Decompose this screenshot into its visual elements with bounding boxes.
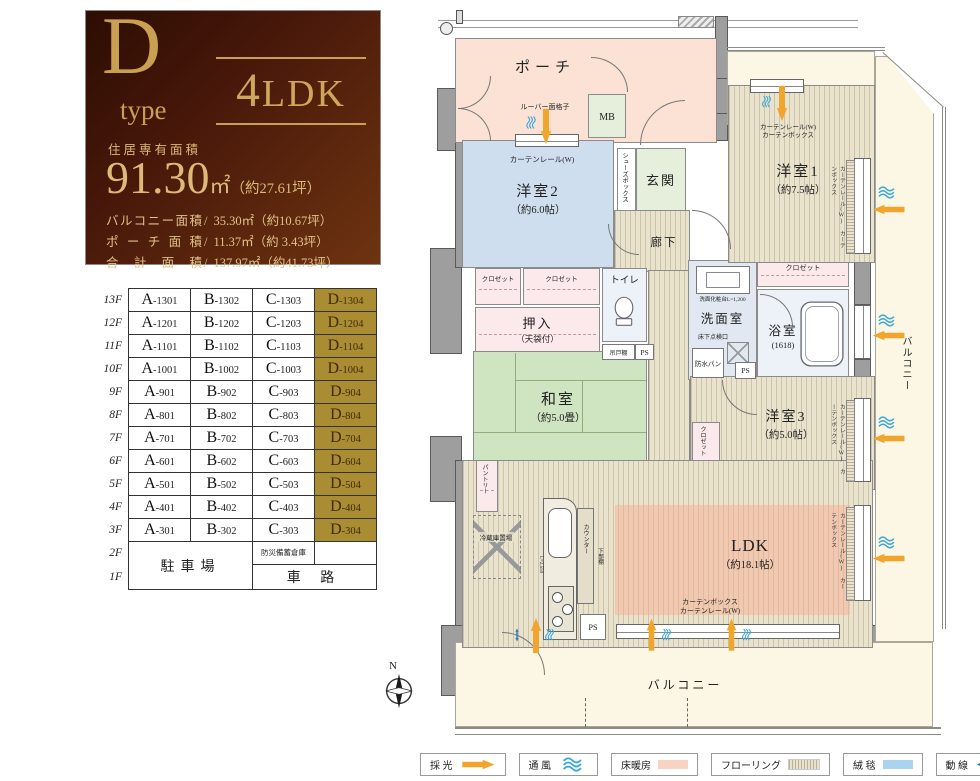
unit-cell: B-702 (191, 427, 253, 450)
fridge-label: 冷蔵庫置場 (478, 532, 514, 542)
light-arrow-icon (872, 204, 906, 215)
wind-icon (874, 314, 900, 327)
closet-label: クロゼット (757, 263, 849, 273)
unit-cell: A-1201 (129, 312, 191, 335)
layout-label: 4LDK (216, 63, 366, 119)
legend-floor-heating: 床暖房 (611, 753, 698, 776)
floor-label: 3F (85, 519, 129, 542)
curtain-label-vertical: カーテンレール(W) カーテンボックス (828, 513, 845, 593)
vanity-label: 洗面化粧台L=1,200 (688, 295, 757, 303)
unit-cell: C-903 (253, 381, 315, 404)
lower-shelf-label: 下部棚 (596, 548, 604, 565)
unit-cell: B-1102 (191, 335, 253, 358)
flooring-swatch (788, 759, 820, 770)
wind-icon (874, 186, 900, 199)
floor-label: 12F (85, 312, 129, 335)
unit-cell: B-802 (191, 404, 253, 427)
unit-cell: C-1303 (253, 289, 315, 312)
type-word: type (120, 97, 167, 124)
wind-icon (874, 416, 900, 429)
unit-cell: C-703 (253, 427, 315, 450)
floor-row: 13FA-1301B-1302C-1303D-1304 (85, 289, 377, 312)
unit-cell: A-601 (129, 450, 191, 473)
curtain-label: カーテンレール(W) (492, 154, 592, 165)
hatch-block (678, 16, 714, 28)
area-tsubo: （約27.61坪） (231, 181, 322, 197)
curtain-box (846, 507, 855, 601)
unit-cell: B-902 (191, 381, 253, 404)
washitsu-label: 和室 （約5.0畳） (498, 388, 618, 425)
floor-label: 2F (85, 542, 129, 565)
wind-icon (732, 629, 762, 642)
floor-label: 13F (85, 289, 129, 312)
unit-cell: A-901 (129, 381, 191, 404)
unit-cell: B-1202 (191, 312, 253, 335)
closet-label: クロゼット (475, 273, 521, 283)
detail-row: ポーチ面積/11.37㎡（約 3.43坪） (106, 232, 368, 253)
corridor-band (438, 20, 858, 28)
unit-cell: A-1001 (129, 358, 191, 381)
corridor-lower (648, 270, 690, 484)
floor-row: 7FA-701B-702C-703D-704 (85, 427, 377, 450)
unit-cell: D-704 (315, 427, 377, 450)
unit-cell: C-503 (253, 473, 315, 496)
window (854, 505, 871, 601)
legend-flooring: フローリング (711, 753, 830, 776)
oshiire-label: 押入 （天袋付） (475, 313, 600, 345)
unit-cell: D-1004 (315, 358, 377, 381)
counter-label: カウンター (581, 524, 590, 554)
corridor-label: 廊下 (640, 234, 688, 250)
area-details: バルコニー面積/35.30㎡（約10.67坪） ポーチ面積/11.37㎡（約 3… (106, 211, 368, 274)
exclusive-area: 91.30㎡（約27.61坪） (106, 151, 370, 204)
floor-row: 11FA-1101B-1102C-1103D-1104 (85, 335, 377, 358)
unit-cell: D-804 (315, 404, 377, 427)
unit-cell: B-402 (191, 496, 253, 519)
balcony-divider (687, 698, 688, 727)
empty-cell (315, 542, 377, 565)
floor-row: 3FA-301B-302C-303D-304 (85, 519, 377, 542)
legend-carpet: 絨 毯 (843, 753, 923, 776)
waterproof-pan: 防水パン (692, 348, 724, 378)
unit-cell: B-602 (191, 450, 253, 473)
pantry-label: パントリー (480, 464, 489, 494)
pipe-space: PS (735, 362, 756, 379)
unit-cell: D-904 (315, 381, 377, 404)
floor-label: 1F (85, 565, 129, 590)
kitchen-sink (548, 508, 572, 558)
floor-row: 8FA-801B-802C-803D-804 (85, 404, 377, 427)
unit-cell: A-1301 (129, 289, 191, 312)
burner (552, 616, 563, 627)
area-value: 91.30 (106, 152, 210, 203)
floor-label: 10F (85, 358, 129, 381)
unit-cell: C-1203 (253, 312, 315, 335)
unit-cell: D-504 (315, 473, 377, 496)
unit-cell: A-701 (129, 427, 191, 450)
parking-cell: 駐車場 (129, 542, 253, 590)
ldk-label: LDK （約18.1帖） (670, 536, 830, 572)
floor-row: 4FA-401B-402C-403D-404 (85, 496, 377, 519)
unit-cell: B-502 (191, 473, 253, 496)
detail-row: 合計面積/137.97㎡（約41.73坪） (106, 253, 368, 274)
fridge-space (473, 515, 521, 579)
porch-label: ポーチ (490, 56, 600, 77)
pipe-icon (456, 10, 463, 24)
page: D type 4LDK 住居専有面積 91.30㎡（約27.61坪） バルコニー… (0, 0, 980, 781)
balcony-railing (942, 107, 946, 629)
balcony-railing (727, 47, 885, 51)
floor-label: 9F (85, 381, 129, 404)
inspection-hatch (727, 342, 749, 364)
floor-heating-swatch (658, 760, 688, 769)
floor-plan: バルコニー バルコニー ポーチ MB シューズボックス 玄関 洋室2 （約6.0… (430, 8, 980, 760)
curtain-label: カーテンボックス カーテンレール(W) (640, 598, 780, 616)
unit-cell: D-604 (315, 450, 377, 473)
type-letter: D (102, 5, 161, 87)
unit-cell: A-401 (129, 496, 191, 519)
closet-label: クロゼット (698, 426, 707, 456)
window (854, 158, 871, 254)
floor-label: 5F (85, 473, 129, 496)
unit-cell: D-1304 (315, 289, 377, 312)
light-arrow-icon (540, 106, 552, 146)
yoshitsu2-label: 洋室2 （約6.0帖） (482, 180, 594, 217)
light-arrow-icon (872, 330, 906, 341)
curtain-label-vertical: カーテンレール(W) カーテンボックス (828, 166, 845, 250)
counter-bar (577, 508, 594, 604)
compass-north-label: N (389, 660, 397, 672)
senmen-label: 洗面室 (688, 308, 757, 327)
unit-cell: C-303 (253, 519, 315, 542)
floor-label: 8F (85, 404, 129, 427)
balcony-label-right: バルコニー (898, 336, 913, 391)
floor-row: 6FA-601B-602C-603D-604 (85, 450, 377, 473)
compass-icon (380, 672, 418, 710)
unit-cell: B-302 (191, 519, 253, 542)
floor-label: 6F (85, 450, 129, 473)
wind-icon (874, 536, 900, 549)
legend-wind: 通 風 (519, 753, 599, 776)
unit-cell: B-1002 (191, 358, 253, 381)
unit-cell: A-501 (129, 473, 191, 496)
toilet-icon (613, 290, 635, 332)
carpet-swatch (883, 760, 913, 769)
unit-cell: D-1204 (315, 312, 377, 335)
tenken-label: 床下点検口 (690, 332, 736, 341)
floor-row: 10FA-1001B-1002C-1003D-1004 (85, 358, 377, 381)
type-info-panel: D type 4LDK 住居専有面積 91.30㎡（約27.61坪） バルコニー… (85, 10, 381, 265)
unit-cell: D-404 (315, 496, 377, 519)
vanity-bowl (706, 272, 740, 288)
unit-cell: A-801 (129, 404, 191, 427)
unit-cell: C-803 (253, 404, 315, 427)
genkan-label: 玄関 (636, 170, 686, 189)
pipe-space: PS (635, 344, 654, 360)
unit-cell: D-304 (315, 519, 377, 542)
floor-row: 9FA-901B-902C-903D-904 (85, 381, 377, 404)
light-arrow-icon (776, 84, 788, 122)
curtain-label-vertical: カーテンレール(W) カーテンボックス (828, 404, 845, 480)
unit-cell: A-301 (129, 519, 191, 542)
tatami-line (474, 432, 646, 433)
balcony-railing (455, 727, 941, 735)
curtain-label: カーテンレール(W) カーテンボックス (736, 124, 840, 141)
kitchen-stove (548, 586, 574, 632)
pipe-space: PS (580, 614, 606, 640)
area-unit: ㎡ (210, 174, 231, 198)
balcony-divider (585, 698, 586, 727)
floor-row: 2F 駐車場 防災備蓄倉庫 (85, 542, 377, 565)
unit-cell: B-1302 (191, 289, 253, 312)
flow-arrow-icon (975, 759, 980, 770)
detail-row: バルコニー面積/35.30㎡（約10.67坪） (106, 211, 368, 232)
hydrant-icon (440, 22, 453, 35)
shoe-box-label: シューズボックス (620, 152, 629, 202)
unit-cell: C-403 (253, 496, 315, 519)
floor-label: 4F (85, 496, 129, 519)
unit-cell: C-1003 (253, 358, 315, 381)
legend-flow-line: 動 線 (936, 753, 980, 776)
counter-length-label: L=2,550 (538, 556, 543, 573)
vanity (696, 266, 750, 294)
unit-cell: C-1103 (253, 335, 315, 358)
driveway-cell: 車 路 (253, 565, 377, 590)
unit-cell: D-1104 (315, 335, 377, 358)
wind-icon (558, 757, 588, 772)
light-arrow-icon (460, 759, 496, 770)
unit-cell: C-603 (253, 450, 315, 473)
balcony-label-bottom: バルコニー (620, 676, 750, 693)
window (854, 305, 871, 359)
tatami-line (515, 380, 646, 381)
burner (562, 604, 573, 615)
divider (216, 123, 366, 125)
light-arrow-icon (872, 553, 906, 564)
divider (216, 57, 366, 59)
unit-cell: A-1101 (129, 335, 191, 358)
floor-row: 12FA-1201B-1202C-1203D-1204 (85, 312, 377, 335)
legend: 採 光 通 風 床暖房 フローリング 絨 毯 動 線 (420, 753, 980, 776)
legend-light: 採 光 (420, 753, 506, 776)
window (854, 398, 871, 482)
light-arrow-icon (872, 433, 906, 444)
wind-icon (535, 629, 565, 642)
floor-row: 5FA-501B-502C-503D-504 (85, 473, 377, 496)
toilet-label: トイレ (602, 272, 647, 286)
curtain-box (846, 400, 855, 482)
hanging-shelf: 吊戸棚 (602, 344, 635, 360)
wind-icon (652, 629, 682, 642)
burner (552, 592, 563, 603)
closet-label: クロゼット (523, 273, 600, 283)
storage-cell: 防災備蓄倉庫 (253, 542, 315, 565)
bathtub-icon (800, 296, 844, 372)
floor-unit-table: 13FA-1301B-1302C-1303D-130412FA-1201B-12… (85, 288, 377, 590)
floor-label: 11F (85, 335, 129, 358)
mb-label: MB (588, 112, 626, 123)
floor-label: 7F (85, 427, 129, 450)
door-arc (692, 210, 731, 249)
